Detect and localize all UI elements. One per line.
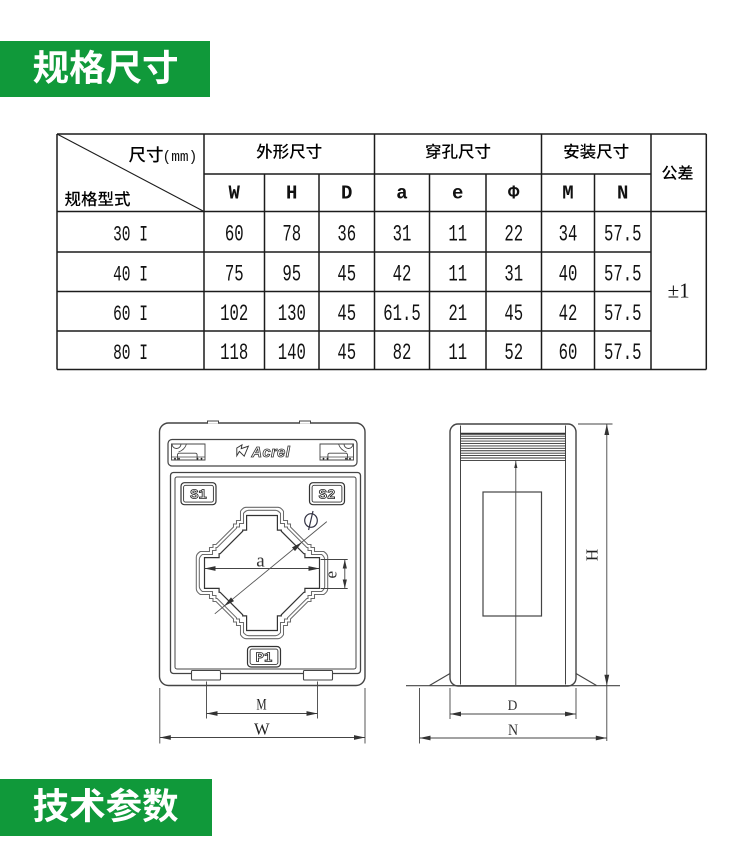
svg-text:e: e <box>452 183 463 205</box>
svg-text:a: a <box>396 183 407 205</box>
svg-text:57.5: 57.5 <box>604 222 642 248</box>
svg-text:D: D <box>508 697 518 714</box>
svg-text:61.5: 61.5 <box>383 301 421 327</box>
svg-text:80 I: 80 I <box>113 340 148 366</box>
svg-text:H: H <box>583 549 602 561</box>
svg-text:±1: ±1 <box>668 279 690 303</box>
svg-text:102: 102 <box>220 301 248 327</box>
svg-text:36: 36 <box>337 222 356 248</box>
svg-text:31: 31 <box>504 262 523 288</box>
svg-text:82: 82 <box>393 340 412 366</box>
svg-text:M: M <box>562 183 573 205</box>
svg-text:11: 11 <box>448 340 467 366</box>
svg-text:P1: P1 <box>256 651 273 667</box>
svg-text:e: e <box>322 571 341 579</box>
svg-text:a: a <box>256 550 265 571</box>
svg-text:S2: S2 <box>319 488 336 504</box>
svg-text:Φ: Φ <box>508 183 520 205</box>
svg-text:42: 42 <box>559 301 578 327</box>
svg-text:31: 31 <box>393 222 412 248</box>
svg-text:95: 95 <box>282 262 301 288</box>
svg-text:60: 60 <box>559 340 578 366</box>
svg-text:34: 34 <box>559 222 578 248</box>
svg-text:N: N <box>508 722 518 739</box>
svg-text:30 I: 30 I <box>113 221 148 247</box>
svg-text:H: H <box>286 183 297 205</box>
svg-text:W: W <box>254 720 270 739</box>
svg-text:60: 60 <box>225 222 244 248</box>
svg-text:M: M <box>256 697 266 714</box>
svg-text:118: 118 <box>220 340 248 366</box>
svg-text:45: 45 <box>337 301 356 327</box>
svg-text:21: 21 <box>448 301 467 327</box>
svg-text:75: 75 <box>225 262 244 288</box>
svg-text:N: N <box>617 183 628 205</box>
svg-text:45: 45 <box>504 301 523 327</box>
svg-text:60 I: 60 I <box>113 301 148 327</box>
svg-text:57.5: 57.5 <box>604 262 642 288</box>
svg-text:57.5: 57.5 <box>604 340 642 366</box>
svg-text:40: 40 <box>559 262 578 288</box>
svg-text:(mm): (mm) <box>163 150 198 166</box>
svg-text:45: 45 <box>337 340 356 366</box>
svg-text:130: 130 <box>278 301 306 327</box>
svg-text:78: 78 <box>282 222 301 248</box>
svg-text:S1: S1 <box>190 488 207 504</box>
svg-text:D: D <box>341 183 352 205</box>
svg-text:Acrel: Acrel <box>251 445 291 461</box>
svg-text:45: 45 <box>337 262 356 288</box>
svg-text:140: 140 <box>278 340 306 366</box>
svg-text:42: 42 <box>393 262 412 288</box>
svg-text:22: 22 <box>504 222 523 248</box>
svg-text:W: W <box>228 183 240 205</box>
svg-text:11: 11 <box>448 222 467 248</box>
svg-text:11: 11 <box>448 262 467 288</box>
svg-text:52: 52 <box>504 340 523 366</box>
svg-text:57.5: 57.5 <box>604 301 642 327</box>
svg-text:40 I: 40 I <box>113 261 148 287</box>
